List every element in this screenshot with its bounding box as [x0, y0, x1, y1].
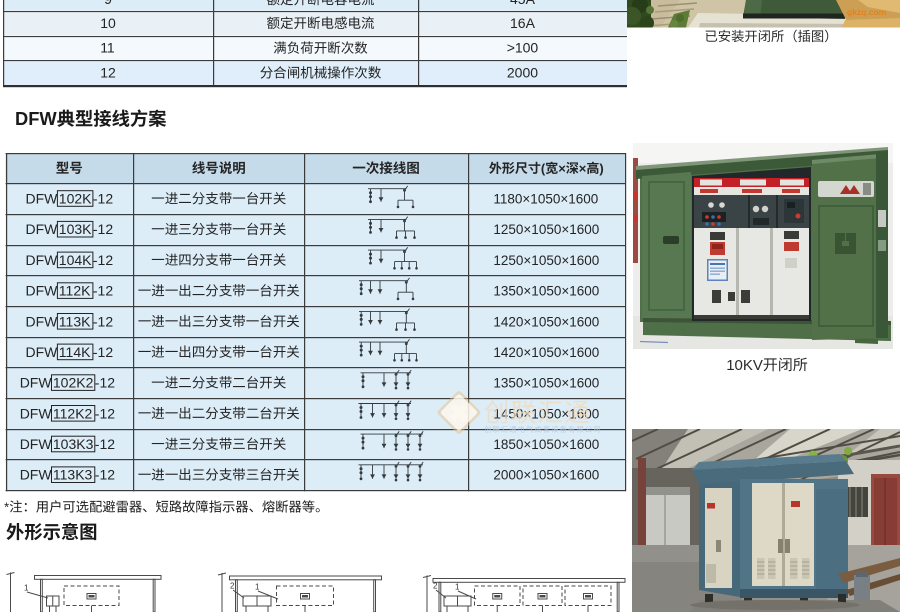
svg-text:-12: -12 [95, 467, 115, 483]
svg-text:1: 1 [455, 583, 460, 592]
svg-text:1850×1050×1600: 1850×1050×1600 [493, 437, 599, 452]
svg-text:2000: 2000 [507, 65, 538, 81]
svg-text:16A: 16A [510, 15, 536, 31]
svg-text:DFW: DFW [26, 252, 59, 268]
svg-text:112K2: 112K2 [53, 405, 93, 421]
svg-text:1250×1050×1600: 1250×1050×1600 [493, 222, 599, 237]
svg-text:×: × [579, 161, 587, 176]
svg-text:1420×1050×1600: 1420×1050×1600 [493, 345, 599, 360]
svg-text:45A: 45A [510, 0, 536, 7]
svg-text:): ) [599, 161, 603, 176]
svg-text:12: 12 [100, 65, 116, 81]
svg-text:11: 11 [100, 40, 115, 56]
svg-text:DFW: DFW [26, 283, 59, 299]
svg-text:1350×1050×1600: 1350×1050×1600 [493, 376, 599, 391]
svg-text:1420×1050×1600: 1420×1050×1600 [493, 314, 599, 329]
svg-text:gkzq.com: gkzq.com [847, 7, 887, 17]
svg-text:-12: -12 [93, 191, 113, 207]
svg-text:103K: 103K [59, 221, 92, 237]
svg-text:1: 1 [255, 583, 260, 592]
svg-text:113K: 113K [59, 313, 91, 329]
svg-text:-12: -12 [95, 436, 115, 452]
svg-text:DFW: DFW [20, 467, 53, 483]
svg-text:1350×1050×1600: 1350×1050×1600 [493, 284, 599, 299]
svg-text:DFW: DFW [26, 191, 59, 207]
svg-text:103K3: 103K3 [53, 436, 94, 452]
svg-text:112K: 112K [59, 283, 91, 299]
svg-text:-12: -12 [93, 221, 113, 237]
svg-text:-12: -12 [95, 375, 115, 391]
svg-text:10KV: 10KV [726, 357, 763, 374]
svg-text:DFW: DFW [15, 108, 57, 129]
svg-text:-12: -12 [93, 283, 113, 299]
svg-text:×: × [558, 161, 566, 176]
svg-text:-12: -12 [93, 344, 113, 360]
svg-text:-12: -12 [93, 252, 113, 268]
svg-text:113K3: 113K3 [53, 467, 93, 483]
svg-text:DFW: DFW [20, 375, 53, 391]
svg-text:114K: 114K [59, 344, 91, 360]
svg-text:102K: 102K [59, 191, 92, 207]
svg-text:*: * [4, 500, 9, 515]
svg-text:>100: >100 [507, 40, 539, 56]
svg-text:1: 1 [24, 584, 29, 593]
svg-text:(: ( [541, 161, 546, 176]
svg-text:102K2: 102K2 [53, 375, 94, 391]
svg-text:2: 2 [433, 582, 438, 591]
svg-text:104K: 104K [59, 252, 92, 268]
svg-text:-12: -12 [93, 313, 113, 329]
svg-text:9: 9 [104, 0, 112, 7]
svg-text:DFW: DFW [26, 313, 59, 329]
svg-text:1180×1050×1600: 1180×1050×1600 [493, 192, 598, 207]
svg-text:2: 2 [230, 582, 235, 591]
svg-text:1250×1050×1600: 1250×1050×1600 [493, 253, 599, 268]
svg-text:DFW: DFW [20, 405, 53, 421]
svg-text:DFW: DFW [20, 436, 53, 452]
svg-text:DFW: DFW [26, 221, 59, 237]
svg-text:10: 10 [100, 15, 116, 31]
svg-text:2000×1050×1600: 2000×1050×1600 [493, 468, 599, 483]
svg-text:DFW: DFW [26, 344, 59, 360]
svg-text:-12: -12 [95, 405, 115, 421]
